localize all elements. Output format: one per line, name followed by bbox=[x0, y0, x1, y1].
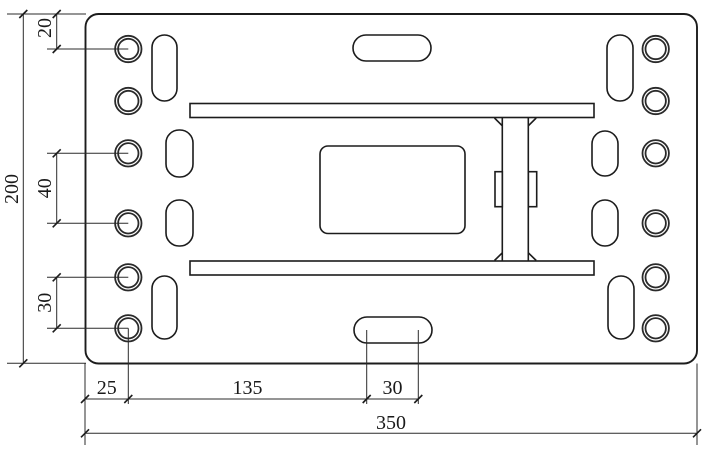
slots-right bbox=[592, 35, 634, 339]
bottom-bar bbox=[190, 261, 594, 275]
gusset-bottom-left bbox=[495, 253, 503, 261]
dim-label-30-bottom: 30 bbox=[383, 377, 403, 399]
plate-dimension-drawing: 20 200 40 30 25 135 30 350 bbox=[0, 0, 706, 450]
dimension-labels: 20 200 40 30 25 135 30 350 bbox=[1, 18, 406, 434]
slots-left bbox=[152, 35, 193, 339]
dim-label-350: 350 bbox=[376, 412, 406, 434]
column-tab-left bbox=[495, 172, 502, 207]
dim-label-40: 40 bbox=[34, 178, 56, 198]
gusset-top-right bbox=[528, 118, 536, 126]
center-opening bbox=[320, 146, 465, 234]
top-bar bbox=[190, 104, 594, 118]
gusset-top-left bbox=[495, 118, 503, 126]
bolt-holes-left bbox=[115, 36, 141, 342]
drawing-canvas: 20 200 40 30 25 135 30 350 bbox=[0, 0, 706, 450]
dim-label-20: 20 bbox=[34, 18, 56, 38]
dim-label-25: 25 bbox=[97, 377, 117, 399]
bolt-holes-right bbox=[643, 36, 669, 342]
dim-label-30-left: 30 bbox=[34, 293, 56, 313]
column-tab-right bbox=[528, 172, 536, 207]
slot-bottom-center bbox=[354, 317, 432, 343]
slot-top-center bbox=[353, 35, 431, 61]
gusset-bottom-right bbox=[528, 253, 536, 261]
dim-label-200: 200 bbox=[1, 174, 23, 204]
column-web bbox=[495, 118, 537, 262]
dim-label-135: 135 bbox=[233, 377, 263, 399]
